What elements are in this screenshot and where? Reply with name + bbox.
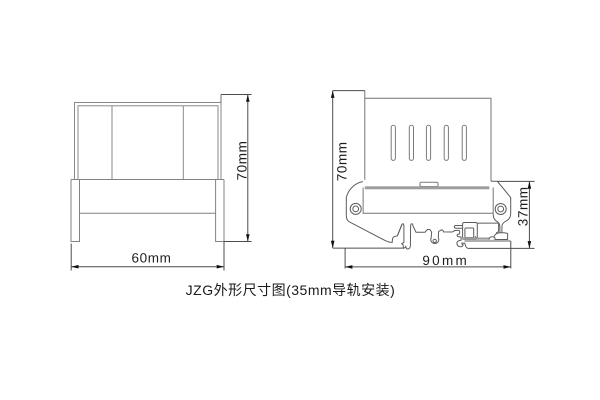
- svg-text:70mm: 70mm: [235, 141, 250, 181]
- svg-text:37mm: 37mm: [516, 186, 531, 226]
- svg-text:60mm: 60mm: [132, 250, 172, 265]
- svg-text:90mm: 90mm: [422, 253, 469, 268]
- svg-text:70mm: 70mm: [335, 141, 350, 181]
